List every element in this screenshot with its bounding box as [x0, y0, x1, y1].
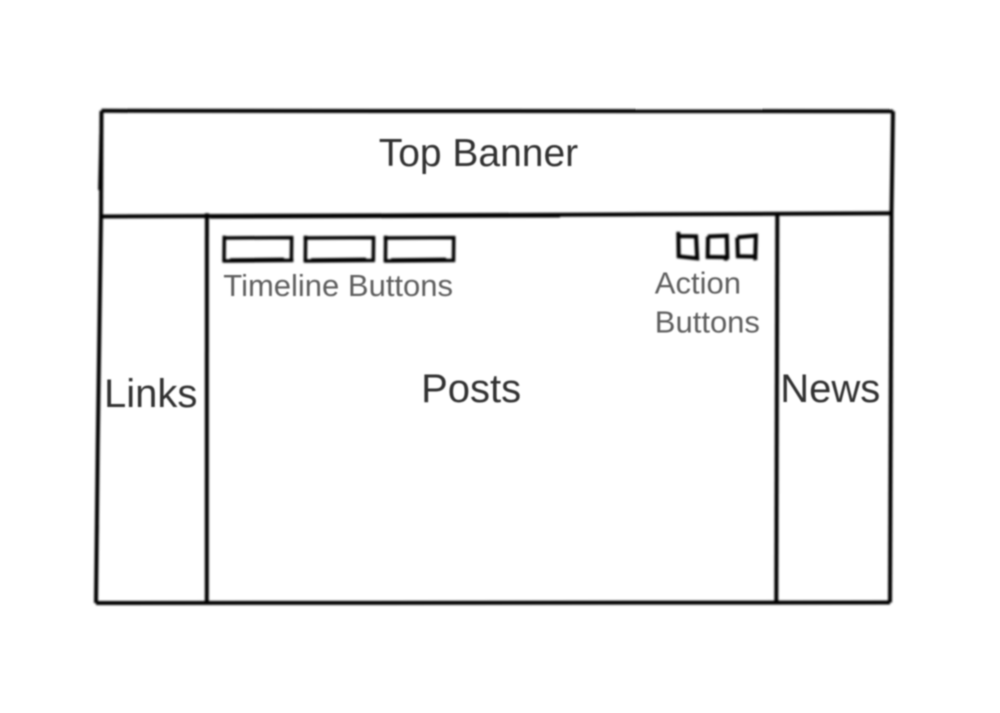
svg-text:Action: Action	[655, 266, 741, 301]
svg-text:News: News	[780, 367, 880, 411]
svg-text:Top Banner: Top Banner	[379, 132, 578, 175]
svg-text:Timeline Buttons: Timeline Buttons	[223, 268, 453, 303]
svg-text:Buttons: Buttons	[655, 305, 760, 340]
svg-text:Links: Links	[104, 372, 197, 416]
svg-text:Posts: Posts	[421, 367, 521, 411]
